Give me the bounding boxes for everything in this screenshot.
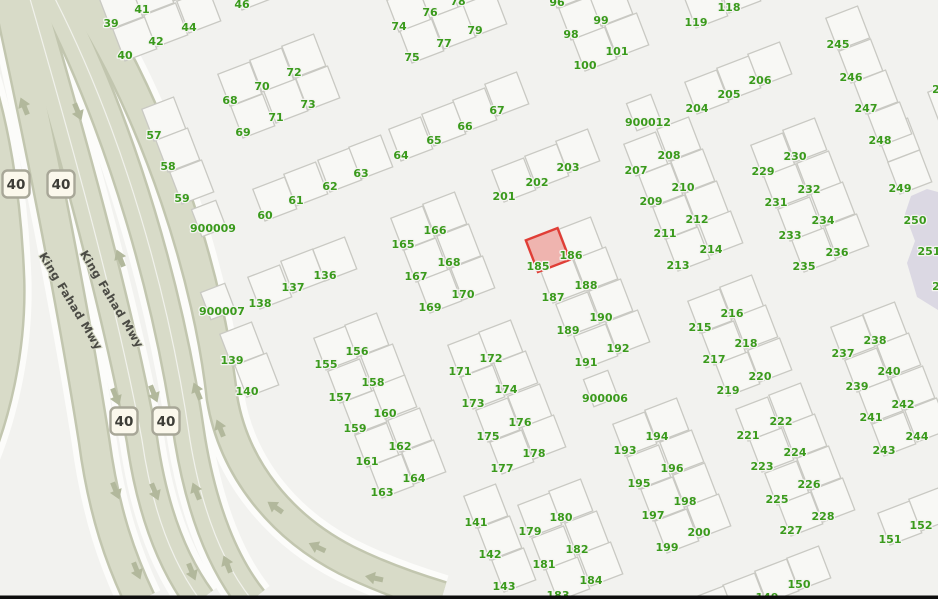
route-shield: 40 [153, 408, 180, 435]
parcel-label: 70 [254, 80, 270, 93]
parcel-label: 164 [403, 472, 426, 485]
parcel-label: 166 [424, 224, 447, 237]
parcel-label: 40 [117, 49, 133, 62]
parcel-label: 2 [932, 83, 938, 96]
parcel-label: 119 [685, 16, 708, 29]
parcel-label: 141 [465, 516, 488, 529]
parcel-label: 155 [315, 358, 338, 371]
parcel-label: 233 [779, 229, 802, 242]
parcel-label: 188 [575, 279, 598, 292]
parcel-label: 101 [606, 45, 629, 58]
parcel-label: 163 [371, 486, 394, 499]
parcel-label: 242 [892, 398, 915, 411]
parcel-label: 136 [314, 269, 337, 282]
parcel-label: 230 [784, 150, 807, 163]
parcel-label: 179 [519, 525, 542, 538]
parcel-label: 77 [436, 37, 451, 50]
parcel-label: 218 [735, 337, 758, 350]
parcel-label: 170 [452, 288, 475, 301]
parcel-label: 231 [765, 196, 788, 209]
parcel-label: 222 [770, 415, 793, 428]
parcel-label: 161 [356, 455, 379, 468]
parcel-label: 226 [798, 478, 821, 491]
parcel-label: 118 [718, 1, 741, 14]
parcel-label: 250 [904, 214, 927, 227]
parcel-label: 172 [480, 352, 503, 365]
parcel-label: 227 [780, 524, 803, 537]
parcel-label: 171 [449, 365, 472, 378]
parcel-label: 232 [798, 183, 821, 196]
parcel-label: 195 [628, 477, 651, 490]
parcel-label: 182 [566, 543, 589, 556]
parcel-label: 248 [869, 134, 892, 147]
parcel-label: 209 [640, 195, 663, 208]
route-shield-number: 40 [52, 177, 71, 193]
parcel-label: 39 [103, 17, 118, 30]
parcel-label: 216 [721, 307, 744, 320]
parcel-label: 206 [749, 74, 772, 87]
parcel-label: 229 [752, 165, 775, 178]
parcel-label: 139 [221, 354, 244, 367]
parcel-label: 71 [268, 111, 283, 124]
parcel-label: 76 [422, 6, 438, 19]
parcel-label: 58 [160, 160, 175, 173]
parcel-label: 98 [563, 28, 578, 41]
parcel-label: 201 [493, 190, 516, 203]
parcel-label: 57 [146, 129, 161, 142]
parcel-label: 204 [686, 102, 709, 115]
parcel-label: 2 [932, 280, 938, 293]
parcel-label: 240 [878, 365, 901, 378]
parcel-label: 900012 [625, 116, 671, 129]
parcel-label: 168 [438, 256, 461, 269]
parcel-label: 900007 [199, 305, 245, 318]
parcel-label: 219 [717, 384, 740, 397]
parcel-label: 190 [590, 311, 613, 324]
parcel-label: 178 [523, 447, 546, 460]
parcel-label: 249 [889, 182, 912, 195]
route-shield: 40 [111, 408, 138, 435]
parcel-label: 194 [646, 430, 669, 443]
parcel-label: 238 [864, 334, 887, 347]
parcel-label: 214 [700, 243, 723, 256]
parcel-label: 79 [467, 24, 482, 37]
parcel-label: 224 [784, 446, 807, 459]
parcel-label: 143 [493, 580, 516, 593]
parcel-label: 174 [495, 383, 518, 396]
parcel-label: 221 [737, 429, 760, 442]
parcel-label: 900009 [190, 222, 236, 235]
parcel-label: 169 [419, 301, 442, 314]
parcel-label: 192 [607, 342, 630, 355]
parcel-label: 160 [374, 407, 397, 420]
parcel-label: 60 [257, 209, 273, 222]
parcel-label: 159 [344, 422, 367, 435]
parcel-label: 42 [148, 35, 163, 48]
parcel-label: 251 [918, 245, 938, 258]
parcel-label: 228 [812, 510, 835, 523]
parcel-label: 191 [575, 356, 598, 369]
parcel-label: 59 [174, 192, 189, 205]
parcel-label: 243 [873, 444, 896, 457]
parcel-label: 181 [533, 558, 556, 571]
parcel-label: 66 [457, 120, 473, 133]
parcel-label: 246 [840, 71, 863, 84]
parcel-label: 217 [703, 353, 726, 366]
parcel-label: 176 [509, 416, 532, 429]
parcel-label: 212 [686, 213, 709, 226]
parcel-label: 158 [362, 376, 385, 389]
parcel-label: 63 [353, 167, 368, 180]
parcel-label: 151 [879, 533, 902, 546]
parcel-label: 211 [654, 227, 677, 240]
parcel-label: 223 [751, 460, 774, 473]
parcel-label: 142 [479, 548, 502, 561]
parcel-label: 225 [766, 493, 789, 506]
parcel-label: 64 [393, 149, 409, 162]
parcel-label: 44 [181, 21, 197, 34]
parcel-label: 78 [450, 0, 465, 8]
parcel-label: 96 [549, 0, 565, 9]
parcel-label: 207 [625, 164, 648, 177]
parcel-label: 175 [477, 430, 500, 443]
parcel-label: 200 [688, 526, 711, 539]
parcel-label: 203 [557, 161, 580, 174]
parcel-label: 65 [426, 134, 441, 147]
parcel-label: 61 [288, 194, 303, 207]
parcel-label: 177 [491, 462, 514, 475]
parcel-label: 197 [642, 509, 665, 522]
parcel-label: 100 [574, 59, 597, 72]
parcel-label: 210 [672, 181, 695, 194]
bottom-bar [0, 596, 938, 599]
parcel-label: 73 [300, 98, 315, 111]
parcel-label: 186 [560, 249, 583, 262]
parcel-label: 187 [542, 291, 565, 304]
route-shield: 40 [3, 171, 30, 198]
route-shield-number: 40 [7, 177, 26, 193]
parcel-label: 165 [392, 238, 415, 251]
parcel-label: 99 [593, 14, 608, 27]
parcel-label: 208 [658, 149, 681, 162]
parcel-label: 235 [793, 260, 816, 273]
parcel-label: 75 [404, 51, 419, 64]
parcel-label: 215 [689, 321, 712, 334]
parcel-label: 189 [557, 324, 580, 337]
parcel-label: 247 [855, 102, 878, 115]
parcel-label: 900006 [582, 392, 628, 405]
route-shield-number: 40 [115, 414, 134, 430]
parcel-label: 185 [527, 260, 550, 273]
parcel-label: 68 [222, 94, 237, 107]
parcel-label: 184 [580, 574, 603, 587]
parcel-label: 220 [749, 370, 772, 383]
parcel-label: 193 [614, 444, 637, 457]
parcel-label: 137 [282, 281, 305, 294]
parcel-label: 198 [674, 495, 697, 508]
parcel-label: 41 [134, 3, 149, 16]
parcel-label: 62 [322, 180, 337, 193]
parcel-label: 152 [910, 519, 933, 532]
map-canvas[interactable]: 3941404244465758596870726971737476787577… [0, 0, 938, 599]
parcel-label: 237 [832, 347, 855, 360]
parcel-label: 138 [249, 297, 272, 310]
parcel-label: 167 [405, 270, 428, 283]
parcel-label: 150 [788, 578, 811, 591]
parcel-label: 245 [827, 38, 850, 51]
parcel-label: 72 [286, 66, 301, 79]
parcel-label: 234 [812, 214, 835, 227]
parcel-label: 205 [718, 88, 741, 101]
route-shield: 40 [48, 171, 75, 198]
parcel-label: 196 [661, 462, 684, 475]
parcel-label: 213 [667, 259, 690, 272]
parcel-label: 202 [526, 176, 549, 189]
parcel-label: 156 [346, 345, 369, 358]
parcel-label: 157 [329, 391, 352, 404]
parcel-label: 180 [550, 511, 573, 524]
route-shield-number: 40 [157, 414, 176, 430]
parcel-label: 140 [236, 385, 259, 398]
parcel-label: 236 [826, 246, 849, 259]
parcel-label: 67 [489, 104, 504, 117]
parcel-label: 241 [860, 411, 883, 424]
parcel-label: 173 [462, 397, 485, 410]
parcel-label: 162 [389, 440, 412, 453]
parcel-label: 199 [656, 541, 679, 554]
parcel-label: 46 [234, 0, 250, 11]
parcel-label: 244 [906, 430, 929, 443]
parcel-label: 69 [235, 126, 250, 139]
parcel-label: 239 [846, 380, 869, 393]
map-viewport[interactable]: 3941404244465758596870726971737476787577… [0, 0, 938, 599]
parcel-label: 74 [391, 20, 407, 33]
